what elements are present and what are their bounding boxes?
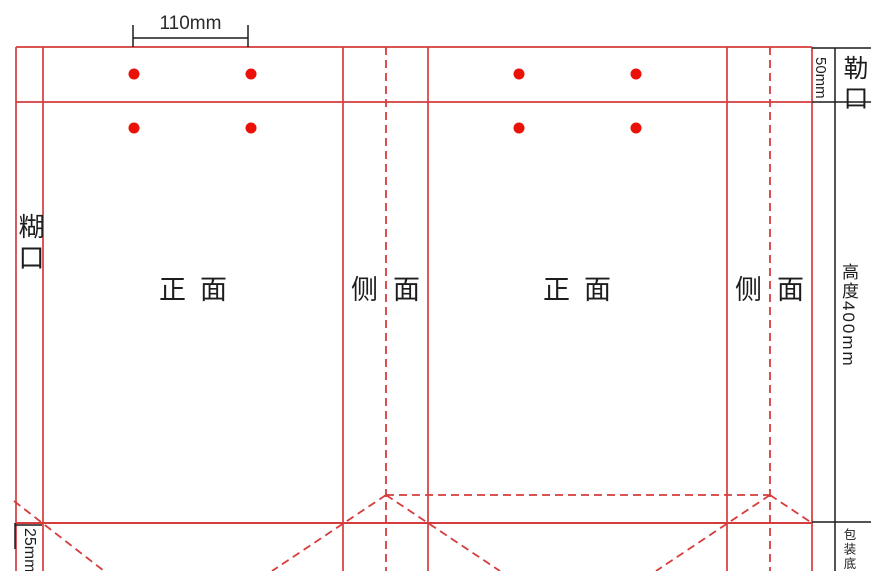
handle-hole-dot <box>129 69 140 80</box>
bottom-note-label: 包装底65 <box>842 528 855 571</box>
bottom-margin-dimension-label: 25mm <box>21 528 37 571</box>
side-panel-1-label: 侧面 <box>326 268 446 307</box>
front-panel-2-label: 正面 <box>487 268 667 307</box>
gusset-diagonal-1-right <box>386 495 500 571</box>
handle-hole-dot <box>631 69 642 80</box>
side-panel-2-label: 侧面 <box>710 268 830 307</box>
bag-dieline-canvas: 110mm 50mm 勒口 高度400mm 包装底65 糊口 正面 侧面 正面 … <box>0 0 871 571</box>
handle-hole-dot <box>129 123 140 134</box>
gusset-diagonal-1-left <box>272 495 386 571</box>
bag-height-dimension-label: 高度400mm <box>840 263 857 368</box>
handle-hole-dot <box>631 123 642 134</box>
glue-flap-label: 糊口 <box>17 213 43 275</box>
gusset-diagonal-2-left <box>656 495 770 571</box>
handle-hole-dot <box>246 123 257 134</box>
handle-hole-dot <box>514 123 525 134</box>
top-fold-flap-label: 勒口 <box>841 55 866 115</box>
hole-spacing-dimension-label: 110mm <box>133 13 248 35</box>
top-fold-height-dimension-label: 50mm <box>813 53 828 103</box>
front-panel-1-label: 正面 <box>103 268 283 307</box>
handle-hole-dot <box>246 69 257 80</box>
handle-hole-dot <box>514 69 525 80</box>
gusset-diagonal-2-right <box>770 495 812 523</box>
